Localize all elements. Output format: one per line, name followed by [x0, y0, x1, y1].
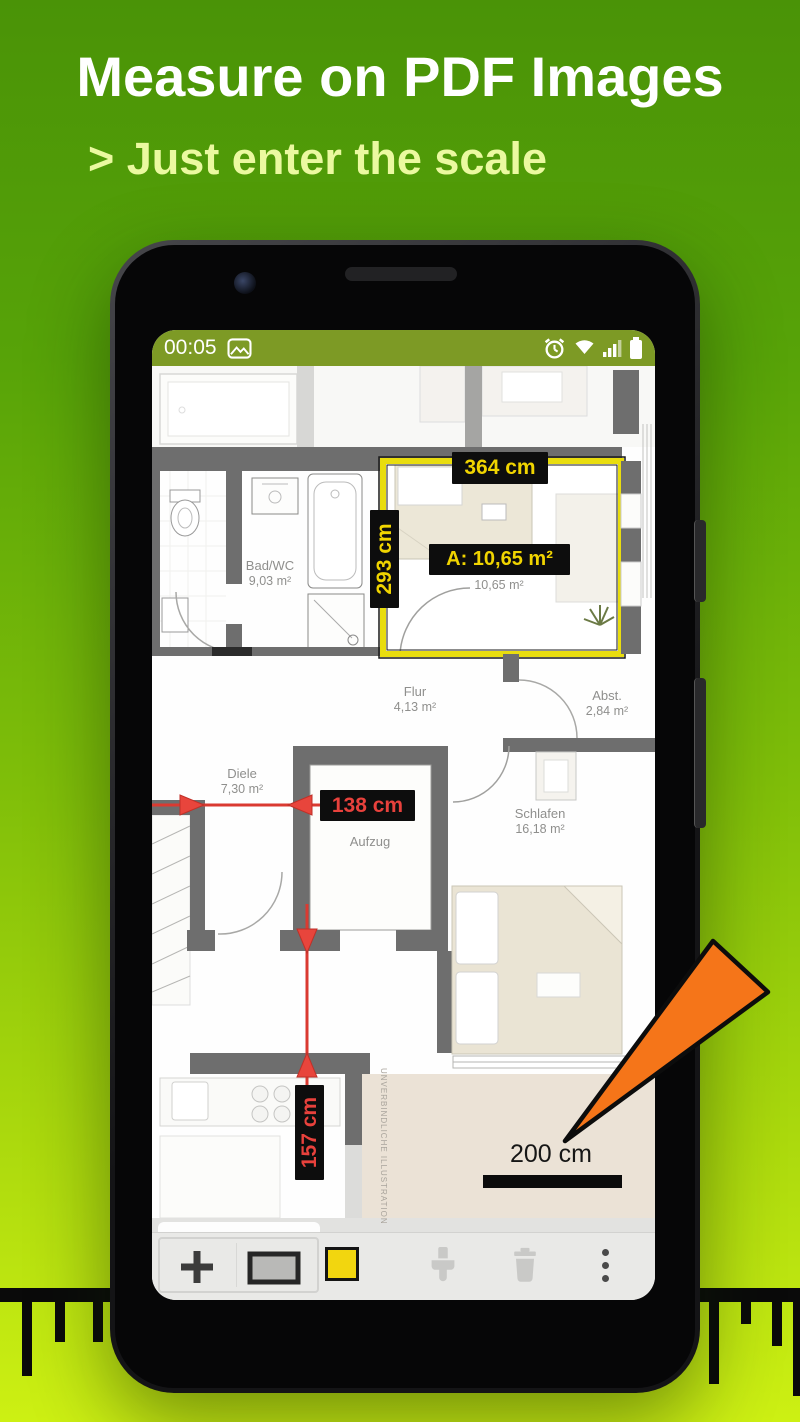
wifi-icon: [573, 338, 596, 358]
hand-basin: [162, 598, 188, 632]
page-title: Measure on PDF Images: [0, 44, 800, 109]
alarm-icon: [543, 337, 566, 360]
room-label-diele: Diele 7,30 m²: [192, 766, 292, 798]
plus-icon: [178, 1248, 216, 1286]
status-bar: 00:05: [152, 330, 655, 366]
phone-frame: 00:05: [110, 240, 700, 1393]
scale-label: 200 cm: [480, 1140, 622, 1169]
battery-icon: [629, 337, 643, 359]
room-label-badwc: Bad/WC 9,03 m²: [220, 558, 320, 590]
page-subtitle: > Just enter the scale: [88, 133, 547, 185]
windows-row: [453, 1056, 639, 1068]
measurement-width-label[interactable]: 364 cm: [452, 452, 548, 484]
toolbar: [152, 1232, 655, 1300]
room-label-abst: Abst. 2,84 m²: [557, 688, 655, 720]
add-measure-button[interactable]: [176, 1246, 218, 1288]
stairs: [152, 815, 190, 1005]
chair-zimmer: [482, 504, 506, 520]
measurement-corridor-label[interactable]: 138 cm: [320, 790, 415, 821]
power-button: [694, 520, 706, 602]
toilet: [170, 490, 200, 536]
sink: [252, 478, 298, 514]
bed-schlafen: [452, 886, 622, 1054]
signal-icon: [603, 339, 622, 357]
status-time: 00:05: [164, 336, 217, 360]
speaker-grille: [345, 267, 457, 281]
rectangle-tool-button[interactable]: [247, 1251, 301, 1285]
scale-bar: [483, 1175, 622, 1188]
room-label-aufzug: Aufzug: [320, 834, 420, 850]
fill-style-button[interactable]: [423, 1243, 463, 1287]
trash-icon: [507, 1245, 543, 1285]
room-label-schlafen: Schlafen 16,18 m²: [490, 806, 590, 838]
measurement-area-label[interactable]: A: 10,65 m²: [429, 544, 570, 575]
phone-screen: 00:05: [152, 330, 655, 1300]
image-icon: [227, 338, 252, 359]
bed-top: [420, 366, 587, 422]
overflow-menu-button[interactable]: [588, 1245, 622, 1285]
overflow-dots-icon: [602, 1249, 609, 1256]
rectangle-icon: [247, 1251, 301, 1285]
measurement-height-label[interactable]: 293 cm: [370, 510, 399, 608]
volume-button: [694, 678, 706, 828]
page-background: Measure on PDF Images > Just enter the s…: [0, 0, 800, 1422]
floor-plan[interactable]: Bad/WC 9,03 m² Zimmer 10,65 m² Flur 4,13…: [152, 366, 655, 1232]
bottom-sheet-edge: [158, 1222, 320, 1232]
delete-button[interactable]: [505, 1243, 545, 1287]
room-label-flur: Flur 4,13 m²: [365, 684, 465, 716]
watermark-text: UNVERBINDLICHE ILLUSTRATION: [379, 1068, 388, 1225]
shower: [308, 594, 364, 650]
measurement-kitchen-label[interactable]: 157 cm: [295, 1085, 324, 1180]
brush-icon: [424, 1244, 462, 1286]
front-camera: [234, 272, 256, 294]
bathtub-top: [160, 374, 297, 444]
color-swatch-button[interactable]: [325, 1247, 359, 1281]
